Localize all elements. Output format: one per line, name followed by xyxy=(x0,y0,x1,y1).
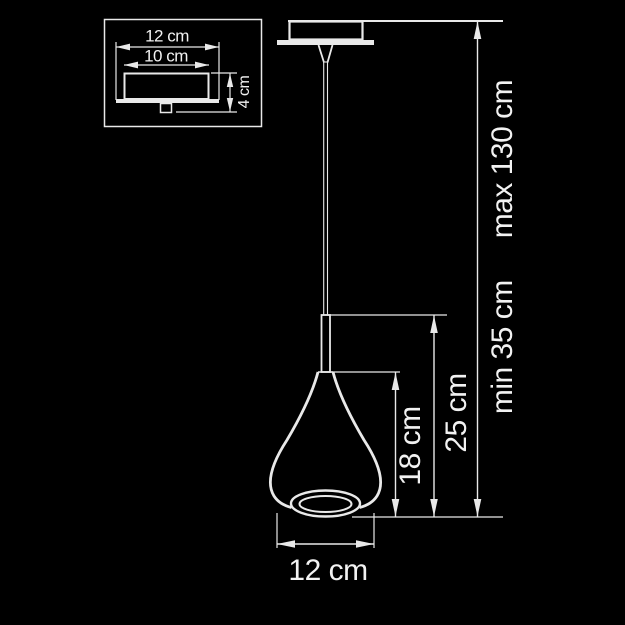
stem-tube xyxy=(322,315,331,372)
pendant-lamp-dimension-diagram: 12 cm 10 cm 4 cm 18 cm 25 cm min 35 cm m… xyxy=(0,0,625,625)
inset-flange-width-label: 12 cm xyxy=(145,28,189,45)
suspension-min-label: min 35 cm xyxy=(488,280,518,414)
suspension-wire xyxy=(324,62,328,315)
cord-grip xyxy=(319,45,325,63)
arrow-up-icon xyxy=(430,316,438,334)
shade-outline-right xyxy=(333,372,381,508)
arrow-up-icon xyxy=(474,22,482,40)
inset-canopy-connector xyxy=(161,104,172,113)
suspension-range-label: min 35 cm max 130 cm xyxy=(488,80,518,414)
shade-outline-left xyxy=(270,372,318,508)
diagram-linework xyxy=(0,0,625,625)
shade-height-label: 18 cm xyxy=(396,406,426,485)
arrow-up-icon xyxy=(227,74,233,88)
arrow-right-icon xyxy=(205,44,219,51)
inset-canopy-body xyxy=(125,74,209,100)
arrow-down-icon xyxy=(474,499,482,517)
fixture-height-label: 25 cm xyxy=(442,373,472,452)
arrow-down-icon xyxy=(392,499,400,517)
arrow-down-icon xyxy=(227,98,233,112)
canopy-body xyxy=(290,22,363,40)
arrow-up-icon xyxy=(392,373,400,391)
inset-canopy-flange xyxy=(116,99,219,103)
arrow-right-icon xyxy=(195,62,209,69)
dimension-lines xyxy=(277,21,503,548)
arrow-left-icon xyxy=(277,540,295,548)
shade-diameter-label: 12 cm xyxy=(288,556,367,586)
arrow-left-icon xyxy=(116,44,130,51)
shade-rim-inner xyxy=(300,496,352,512)
suspension-max-label: max 130 cm xyxy=(488,80,518,238)
arrow-right-icon xyxy=(356,540,374,548)
cord-grip xyxy=(328,45,333,63)
inset-body-width-label: 10 cm xyxy=(144,48,188,65)
arrow-down-icon xyxy=(430,499,438,517)
inset-height-label: 4 cm xyxy=(237,76,253,109)
arrow-left-icon xyxy=(124,62,138,69)
canopy-flange xyxy=(277,40,374,45)
